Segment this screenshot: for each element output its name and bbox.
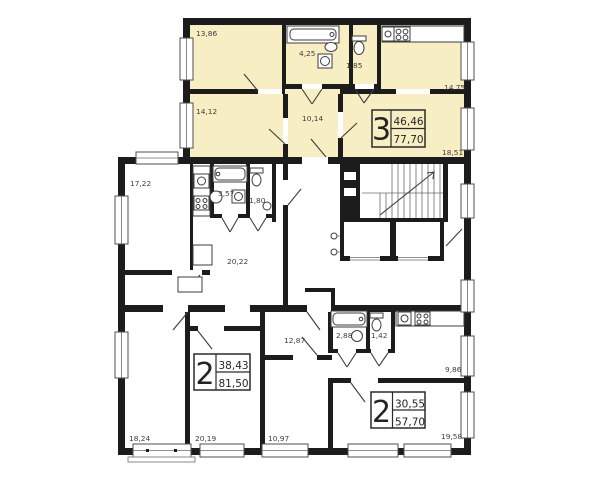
window	[461, 336, 474, 376]
apartment-living-area: 38,43	[219, 360, 249, 372]
window	[461, 42, 474, 80]
room-area-label: 20,22	[227, 257, 248, 266]
window	[200, 444, 244, 457]
bathtub-icon	[213, 166, 247, 182]
room-area-label: 1,80	[249, 196, 266, 205]
sink-icon	[325, 43, 337, 52]
room-area-label: 9,86	[445, 365, 462, 374]
room-area-label: 19,58	[441, 432, 462, 441]
bathtub-icon	[331, 311, 367, 327]
apartment-living-area: 46,46	[394, 116, 424, 128]
room-area-label: 18,51	[442, 148, 463, 157]
apartment-rooms-count: 2	[372, 395, 391, 430]
balcony-door-window	[133, 444, 191, 457]
window	[262, 444, 308, 457]
room-area-label: 12,87	[284, 336, 305, 345]
window	[461, 392, 474, 438]
room-area-label: 10,14	[302, 114, 323, 123]
room-area-label: 2,88	[336, 331, 353, 340]
floor-plan: 13,86 4,25 1,85 14,75 14,12 10,14 18,51 …	[0, 0, 600, 480]
room-area-label: 14,12	[196, 107, 217, 116]
stove-icon	[394, 27, 410, 41]
apartment-living-area: 30,55	[395, 399, 425, 411]
window	[115, 196, 128, 244]
room-area-label: 20,19	[195, 434, 216, 443]
room-area-label: 17,22	[130, 179, 151, 188]
window	[180, 103, 193, 148]
apartment-stamp-3[interactable]: 3 46,46 77,70	[372, 110, 425, 148]
apartment-total-area: 57,70	[395, 417, 425, 429]
apartment-rooms-count: 3	[372, 113, 391, 148]
window	[404, 444, 451, 457]
room-area-label: 10,97	[268, 434, 289, 443]
apartment-total-area: 77,70	[394, 134, 424, 146]
window	[461, 280, 474, 312]
room-area-label: 18,24	[129, 434, 150, 443]
window	[115, 332, 128, 378]
room-area-label: 14,75	[444, 83, 465, 92]
window	[180, 38, 193, 80]
window	[461, 184, 474, 218]
room-area-label: 1,42	[371, 331, 387, 340]
apartment-rooms-count: 2	[195, 357, 214, 392]
stove-icon	[194, 196, 209, 210]
washing-machine-icon	[318, 54, 332, 68]
window	[136, 152, 178, 164]
room-area-label: 4,25	[299, 49, 316, 58]
floor-plan-canvas: 13,86 4,25 1,85 14,75 14,12 10,14 18,51 …	[0, 0, 600, 480]
room-area-label: 13,86	[196, 29, 217, 38]
bathtub-icon	[287, 26, 339, 43]
apartment-total-area: 81,50	[219, 378, 249, 390]
window	[461, 108, 474, 150]
window	[348, 444, 398, 457]
stove-icon	[415, 312, 430, 325]
room-area-label: 3,57	[218, 189, 235, 198]
sink-icon	[352, 331, 363, 342]
room-area-label: 1,85	[346, 61, 363, 70]
